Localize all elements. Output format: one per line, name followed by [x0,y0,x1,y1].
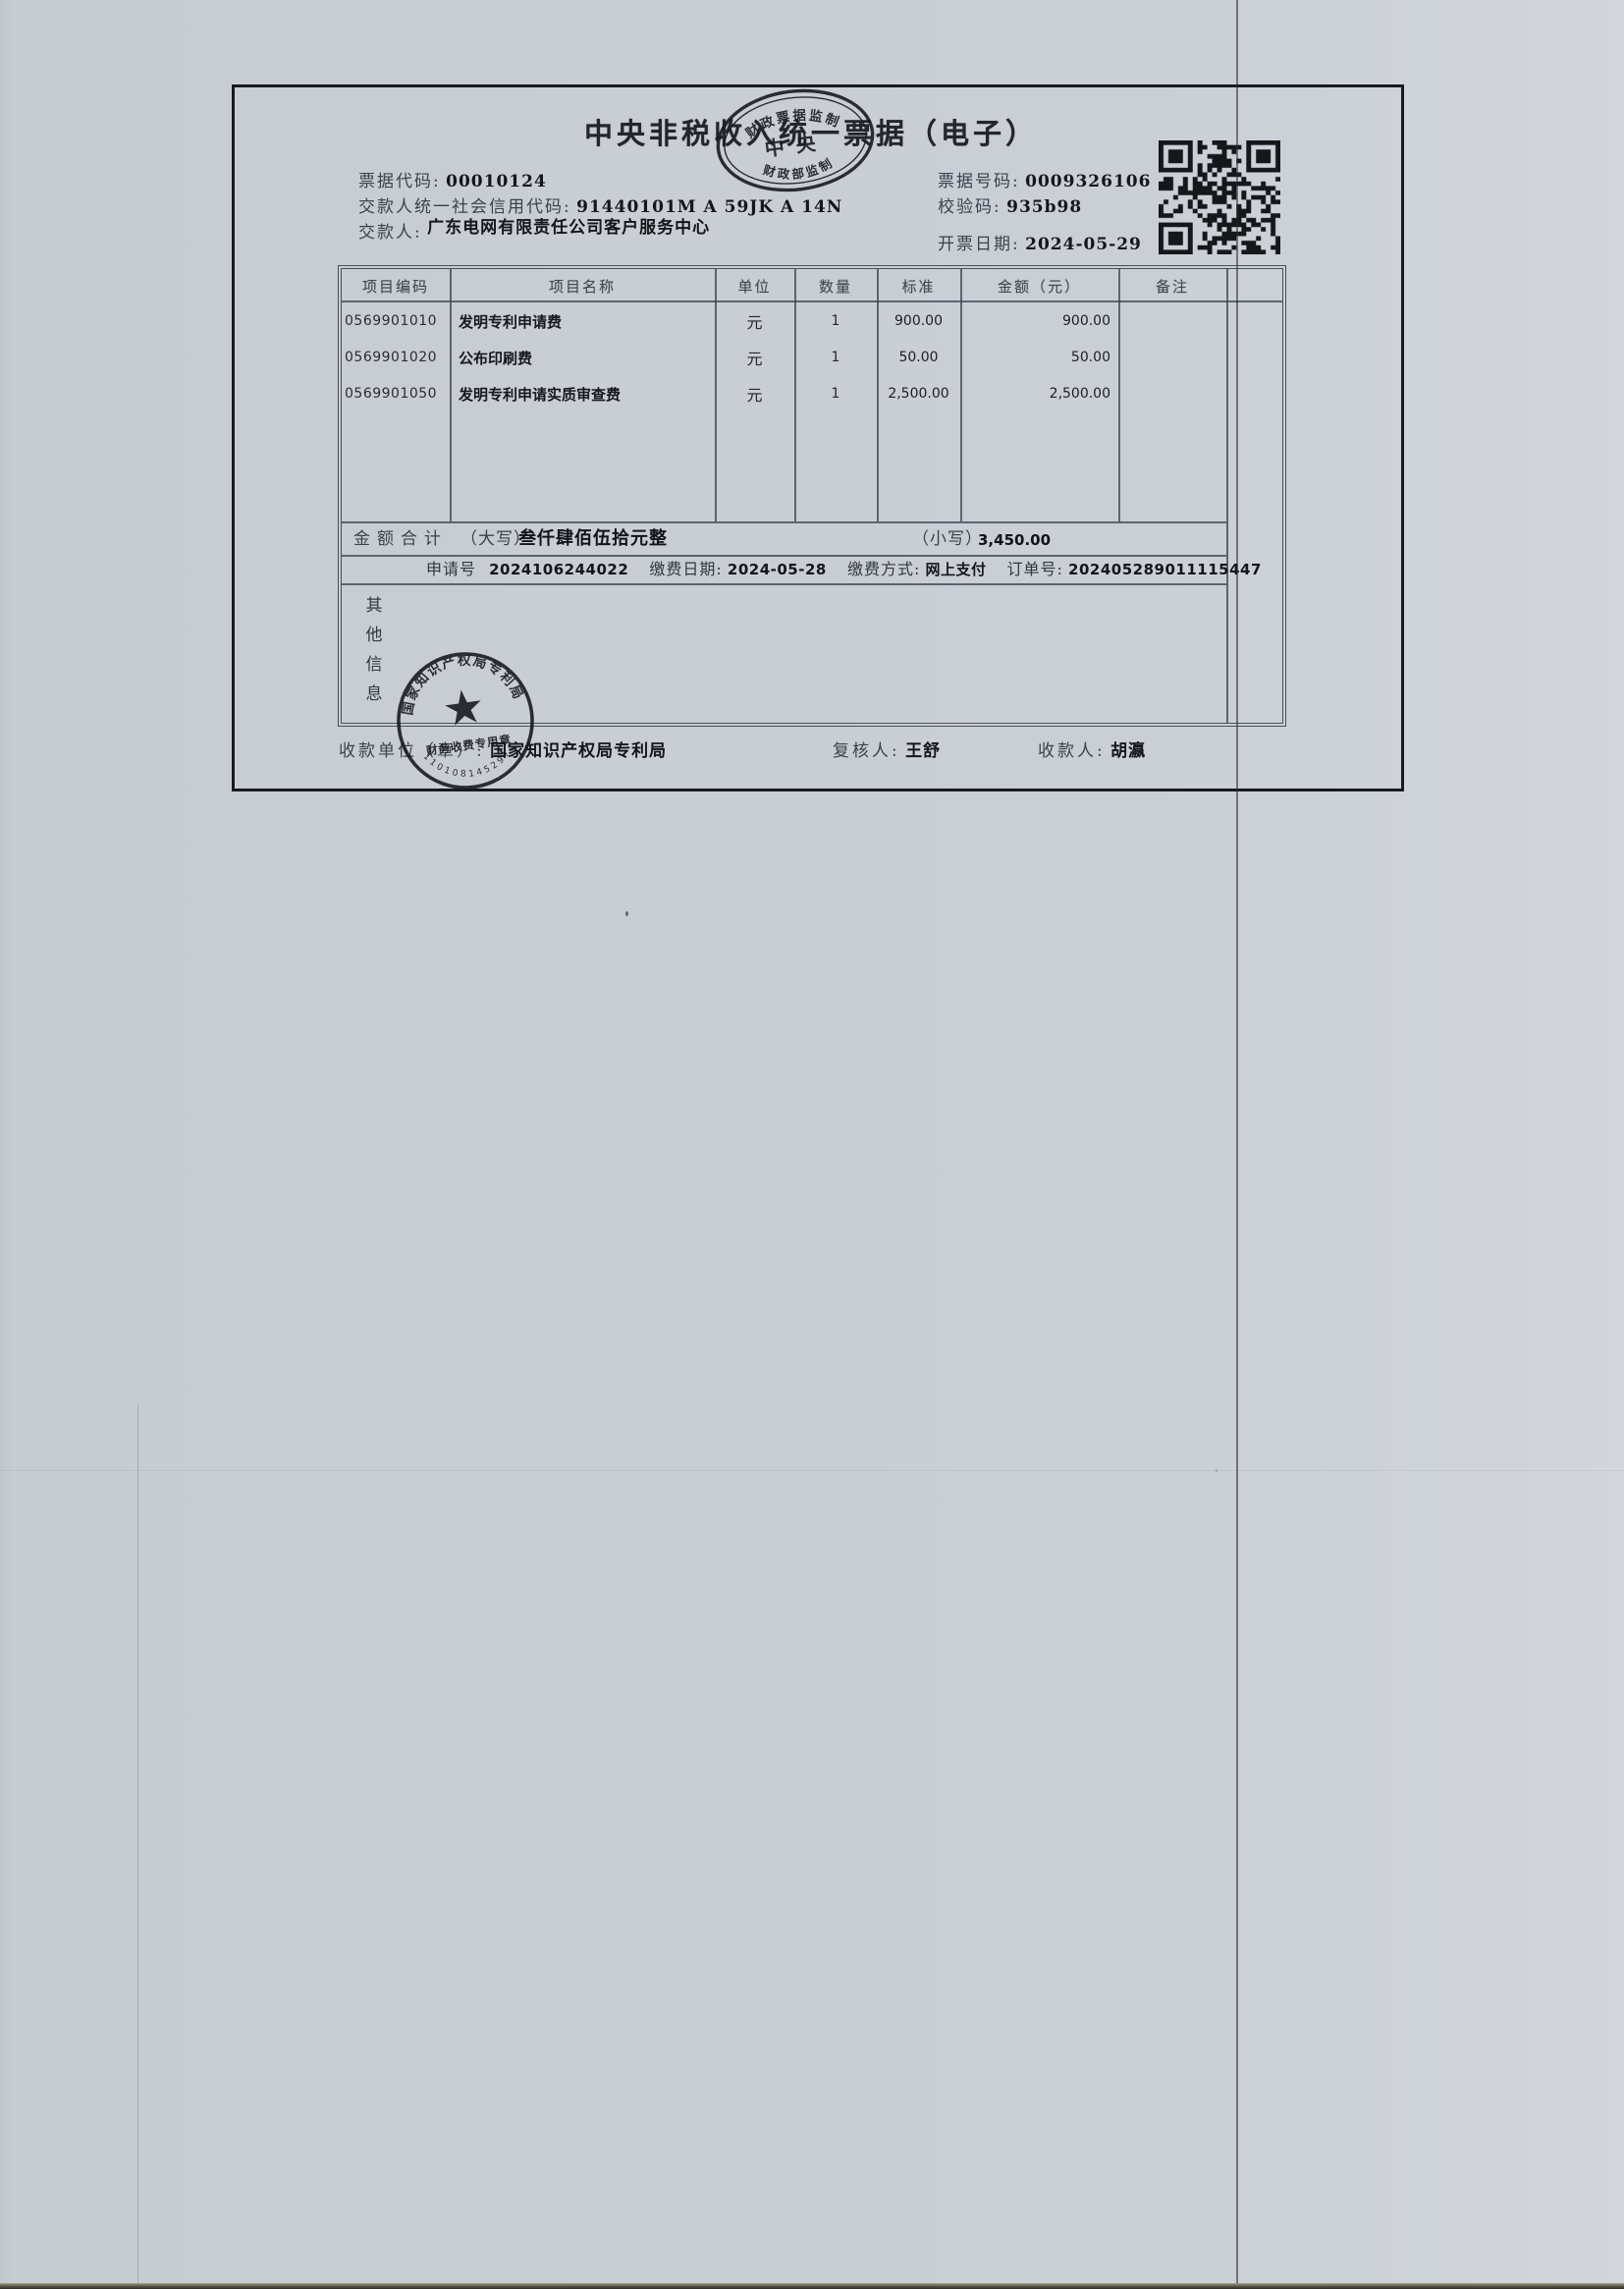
col-header-note: 备注 [1118,276,1226,297]
payment-method-value: 网上支付 [925,561,986,578]
table-row: 0569901020 公布印刷费 元 1 50.00 50.00 [342,341,1282,374]
total-row: 金额合计 （大写） 叁仟肆佰伍拾元整 （小写） 3,450.00 [342,523,1226,555]
field-payer-credit-code: 交款人统一社会信用代码: 91440101M A 59JK A 14N [358,192,842,217]
col-header-amount: 金额（元） [960,276,1118,297]
col-header-unit: 单位 [715,276,794,297]
issue-date-label: 开票日期: [938,235,1020,254]
application-number-value: 2024106244022 [489,561,628,578]
scan-bottom-edge [0,2283,1624,2289]
payer-label: 交款人: [358,223,422,243]
cell-item-code: 0569901020 [342,350,450,365]
seal-star-icon: ★ [439,678,488,737]
total-capital-value: 叁仟肆佰伍拾元整 [518,523,668,555]
cell-item-code: 0569901010 [342,313,450,329]
table-row: 0569901010 发明专利申请费 元 1 900.00 900.00 [342,304,1282,338]
total-small-value: 3,450.00 [978,524,1051,556]
payer-credit-code-value: 91440101M A 59JK A 14N [576,197,842,217]
total-small-label: （小写） [912,523,983,555]
paper-speck [1216,1469,1218,1472]
payment-info-line: 申请号 2024106244022 缴费日期: 2024-05-28 缴费方式:… [426,556,1262,582]
cell-quantity: 1 [794,386,877,402]
payer-credit-code-label: 交款人统一社会信用代码: [358,197,571,217]
field-receipt-number: 票据号码: 0009326106 [938,167,1151,191]
receipt-code-value: 00010124 [446,172,547,191]
cashier-field: 收款人: 胡瀛 [1038,737,1146,765]
field-issue-date: 开票日期: 2024-05-29 [938,230,1142,254]
scan-line [1236,0,1238,2289]
cell-quantity: 1 [794,350,877,365]
order-number-value: 202405289011115447 [1068,561,1262,578]
other-info-label-char: 其 [363,591,385,616]
application-number-label: 申请号 [426,560,476,578]
paper-speck [625,911,628,916]
field-check-code: 校验码: 935b98 [938,192,1082,217]
table-hline [342,300,1282,302]
cell-item-code: 0569901050 [342,386,450,402]
stamp-center-text: 中央 [763,130,828,161]
cashier-label: 收款人: [1038,741,1106,761]
cell-unit: 元 [715,309,794,333]
cell-unit: 元 [715,382,794,406]
cell-standard: 50.00 [877,350,960,365]
issue-date-value: 2024-05-29 [1025,235,1142,254]
cell-amount: 50.00 [960,350,1118,365]
payment-date-value: 2024-05-28 [728,561,827,578]
scanned-page: 中央非税收入统一票据（电子） 财政票据监制 中央 财政部监制 [0,0,1624,2289]
check-code-label: 校验码: [938,197,1001,217]
field-receipt-code: 票据代码: 00010124 [358,167,547,191]
cell-item-name: 发明专利申请实质审查费 [450,384,715,405]
cell-amount: 900.00 [960,313,1118,329]
table-hline [342,583,1226,585]
fiscal-supervision-stamp-icon: 财政票据监制 中央 财政部监制 [706,76,885,205]
cell-item-name: 公布印刷费 [450,348,715,368]
reviewer-label: 复核人: [833,741,900,761]
receipt-document: 中央非税收入统一票据（电子） 财政票据监制 中央 财政部监制 [232,84,1404,791]
order-number-label: 订单号: [1007,560,1063,578]
table-header-row: 项目编码 项目名称 单位 数量 标准 金额（元） 备注 [342,272,1282,300]
payment-date-label: 缴费日期: [649,560,722,578]
col-header-item-code: 项目编码 [342,276,450,297]
reviewer-field: 复核人: 王舒 [833,737,941,765]
col-header-quantity: 数量 [794,276,877,297]
receipt-code-label: 票据代码: [358,172,441,191]
field-payer: 交款人: 广东电网有限责任公司客户服务中心 [358,218,710,243]
cell-item-name: 发明专利申请费 [450,311,715,332]
other-info-label-char: 息 [363,680,385,704]
other-info-label-char: 他 [363,621,385,645]
other-info-label-char: 信 [363,650,385,675]
cashier-value: 胡瀛 [1110,741,1146,761]
payment-method-label: 缴费方式: [847,560,920,578]
receipt-number-label: 票据号码: [938,172,1020,191]
col-header-standard: 标准 [877,276,960,297]
payee-seal-stamp-icon: 国家知识产权局专利局 ★ 财务收费专用章 1101081452974 [382,637,548,803]
col-header-item-name: 项目名称 [450,276,715,297]
qr-code [1159,140,1280,254]
payer-value: 广东电网有限责任公司客户服务中心 [427,218,710,238]
cell-standard: 2,500.00 [877,386,960,402]
cell-amount: 2,500.00 [960,386,1118,402]
seal-banner-text: 财务收费专用章 [424,733,513,758]
cell-unit: 元 [715,346,794,369]
cell-quantity: 1 [794,313,877,329]
check-code-value: 935b98 [1006,197,1082,217]
total-label: 金额合计 [353,523,448,555]
cell-standard: 900.00 [877,313,960,329]
receipt-number-value: 0009326106 [1025,172,1151,191]
scan-line-faint [137,1404,138,2289]
scan-hline-faint [0,1470,1624,1471]
table-row: 0569901050 发明专利申请实质审查费 元 1 2,500.00 2,50… [342,377,1282,410]
reviewer-value: 王舒 [905,741,941,761]
